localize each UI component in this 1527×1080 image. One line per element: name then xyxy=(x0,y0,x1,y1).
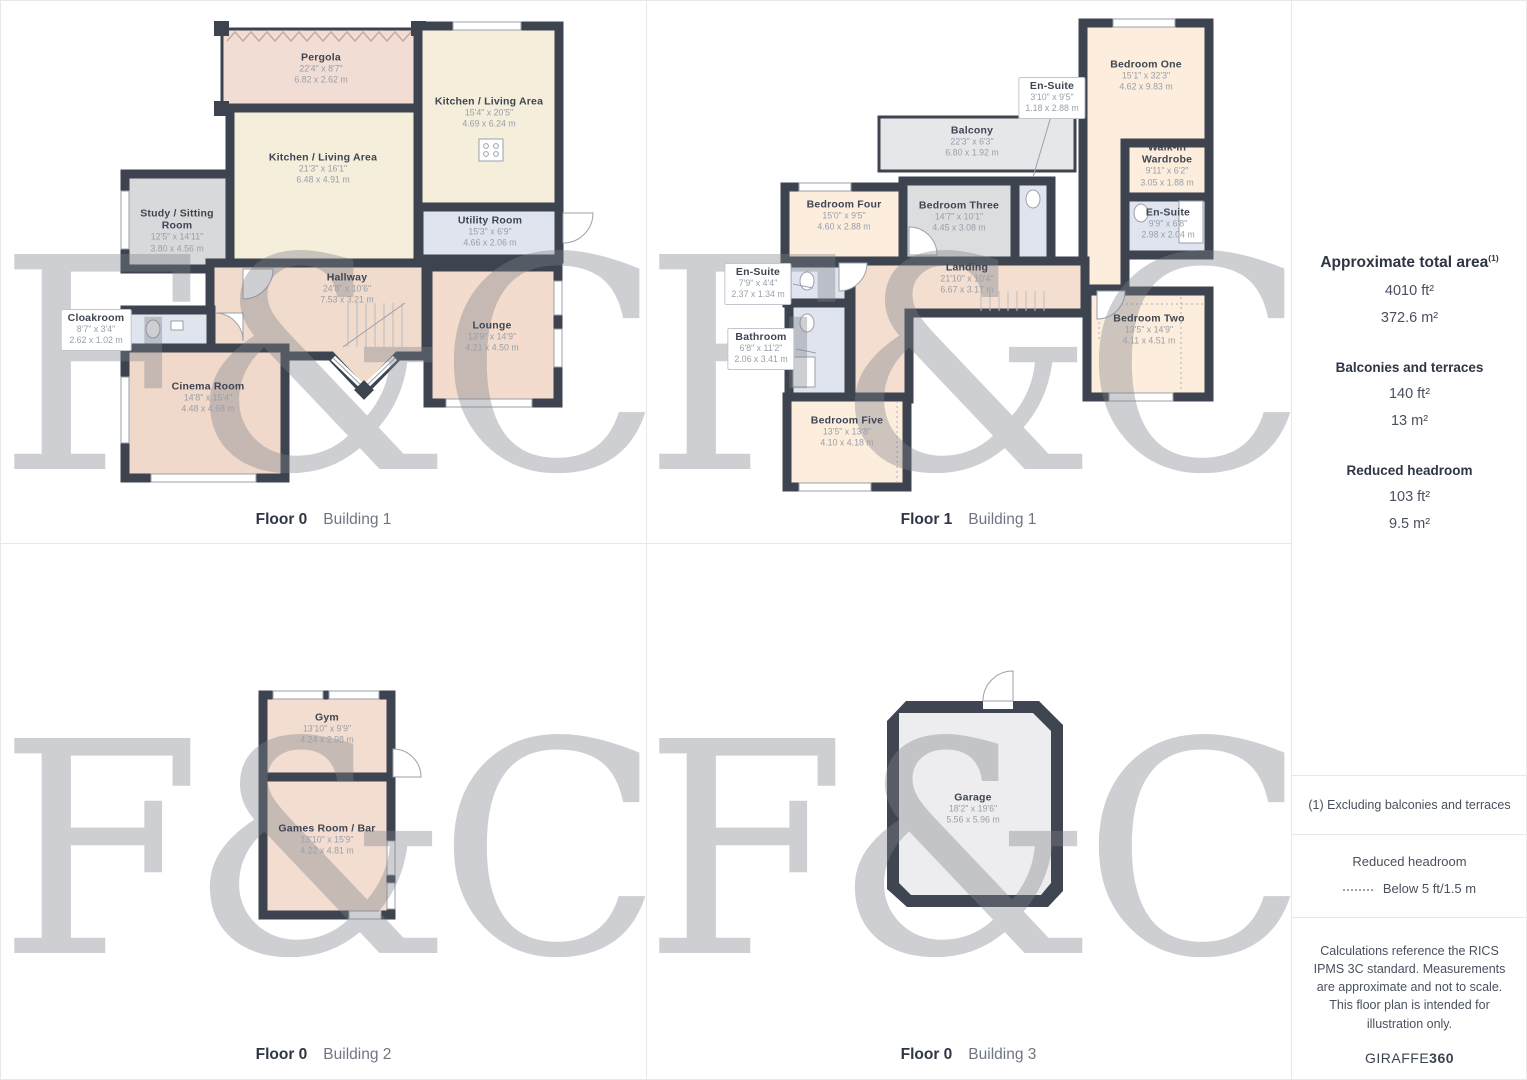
giraffe360-logo: GIRAFFE360 xyxy=(1307,1048,1512,1068)
room-label-ensuite-top: En-Suite 3'10" x 9'5" 1.18 x 2.88 m xyxy=(1018,77,1085,119)
caption-floor: Floor 0 xyxy=(256,1046,308,1063)
balconies-group: Balconies and terraces 140 ft² 13 m² xyxy=(1291,360,1527,429)
horizontal-divider xyxy=(1,543,1291,544)
disclaimer-text: Calculations reference the RICS IPMS 3C … xyxy=(1307,942,1512,1033)
total-area-title: Approximate total area(1) xyxy=(1291,253,1527,272)
room-label-study: Study / Sitting Room 12'5" x 14'11" 3.80… xyxy=(130,208,225,255)
room-label-utility: Utility Room 15'3" x 6'9" 4.66 x 2.06 m xyxy=(458,215,522,250)
caption-b3f0: Floor 0Building 3 xyxy=(646,1046,1291,1064)
caption-building: Building 2 xyxy=(323,1046,391,1063)
balconies-title: Balconies and terraces xyxy=(1291,360,1527,375)
quadrant-floor0-building2: F&C Gym 13'10" x 9'9" 4.24 x 2.98 m Game… xyxy=(1,543,646,1080)
room-label-bathroom: Bathroom 6'8" x 11'2" 2.06 x 3.41 m xyxy=(727,328,794,370)
room-label-ensuite-right: En-Suite 9'9" x 6'8" 2.98 x 2.04 m xyxy=(1141,207,1194,242)
caption-building: Building 3 xyxy=(968,1046,1036,1063)
caption-building: Building 1 xyxy=(968,511,1036,528)
quadrant-floor1-building1: F&C Bedroom One 15'1" x 32'3" 4.62 x 9.8… xyxy=(646,1,1291,543)
reduced-headroom-title: Reduced headroom xyxy=(1291,463,1527,478)
footnote-marker: (1) xyxy=(1488,253,1498,263)
caption-building: Building 1 xyxy=(323,511,391,528)
legend-title: Reduced headroom xyxy=(1291,854,1527,869)
caption-floor: Floor 0 xyxy=(256,511,308,528)
balconies-ft: 140 ft² xyxy=(1291,386,1527,402)
caption-b1f1: Floor 1Building 1 xyxy=(646,511,1291,529)
room-label-kitchen-living-1: Kitchen / Living Area 15'4" x 20'5" 4.69… xyxy=(435,96,543,131)
reduced-headroom-ft: 103 ft² xyxy=(1291,489,1527,505)
vertical-divider xyxy=(646,1,647,1080)
legend-label: Below 5 ft/1.5 m xyxy=(1383,881,1476,896)
room-label-cloakroom: Cloakroom 8'7" x 3'4" 2.62 x 1.02 m xyxy=(61,309,132,351)
balconies-m: 13 m² xyxy=(1291,413,1527,429)
area-summary: Approximate total area(1) 4010 ft² 372.6… xyxy=(1291,1,1527,775)
legend: Reduced headroom Below 5 ft/1.5 m xyxy=(1291,834,1527,917)
room-label-pergola: Pergola 22'4" x 8'7" 6.82 x 2.62 m xyxy=(294,52,347,87)
sidebar-divider xyxy=(1291,1,1292,1080)
floorplan-sheet: F&C Pergola 22'4" x 8'7" 6.82 x 2.62 m K… xyxy=(0,0,1527,1080)
total-area-m: 372.6 m² xyxy=(1291,310,1527,326)
room-label-walkin-wardrobe: Walk-In Wardrobe 9'11" x 6'2" 3.05 x 1.8… xyxy=(1127,142,1207,189)
room-label-garage: Garage 18'2" x 19'6" 5.56 x 5.96 m xyxy=(946,792,999,827)
dotted-line-icon xyxy=(1343,889,1373,891)
footnote: (1) Excluding balconies and terraces xyxy=(1291,775,1527,834)
reduced-headroom-group: Reduced headroom 103 ft² 9.5 m² xyxy=(1291,463,1527,532)
room-label-games-room: Games Room / Bar 13'10" x 15'9" 4.22 x 4… xyxy=(275,823,380,858)
room-label-bedroom-two: Bedroom Two 13'5" x 14'9" 4.11 x 4.51 m xyxy=(1113,313,1184,348)
caption-b2f0: Floor 0Building 2 xyxy=(1,1046,646,1064)
room-label-bedroom-five: Bedroom Five 13'5" x 13'8" 4.10 x 4.18 m xyxy=(811,415,883,450)
quadrant-floor0-building1: F&C Pergola 22'4" x 8'7" 6.82 x 2.62 m K… xyxy=(1,1,646,543)
room-label-bedroom-one: Bedroom One 15'1" x 32'3" 4.62 x 9.83 m xyxy=(1110,59,1182,94)
room-label-bedroom-four: Bedroom Four 15'0" x 9'5" 4.60 x 2.88 m xyxy=(807,199,882,234)
room-label-ensuite-left: En-Suite 7'9" x 4'4" 2.37 x 1.34 m xyxy=(724,263,791,305)
caption-floor: Floor 1 xyxy=(901,511,953,528)
room-label-bedroom-three: Bedroom Three 14'7" x 10'1" 4.45 x 3.08 … xyxy=(919,200,999,235)
room-label-lounge: Lounge 13'9" x 14'9" 4.21 x 4.50 m xyxy=(465,320,518,355)
total-area-ft: 4010 ft² xyxy=(1291,283,1527,299)
room-label-hallway: Hallway 24'8" x 10'6" 7.53 x 3.21 m xyxy=(320,272,373,307)
room-label-kitchen-living-2: Kitchen / Living Area 21'3" x 16'1" 6.48… xyxy=(269,152,377,187)
disclaimer: Calculations reference the RICS IPMS 3C … xyxy=(1291,917,1527,1080)
room-label-landing: Landing 21'10" x 10'4" 6.67 x 3.17 m xyxy=(940,262,993,297)
quadrant-floor0-building3: F&C Garage 18'2" x 19'6" 5.56 x 5.96 m F… xyxy=(646,543,1291,1080)
info-sidebar: Approximate total area(1) 4010 ft² 372.6… xyxy=(1291,1,1527,1080)
room-label-cinema: Cinema Room 14'8" x 15'4" 4.48 x 4.68 m xyxy=(172,381,245,416)
caption-floor: Floor 0 xyxy=(901,1046,953,1063)
caption-b1f0: Floor 0Building 1 xyxy=(1,511,646,529)
reduced-headroom-m: 9.5 m² xyxy=(1291,516,1527,532)
room-label-gym: Gym 13'10" x 9'9" 4.24 x 2.98 m xyxy=(300,712,353,747)
room-label-balcony: Balcony 22'3" x 6'3" 6.80 x 1.92 m xyxy=(945,125,998,160)
